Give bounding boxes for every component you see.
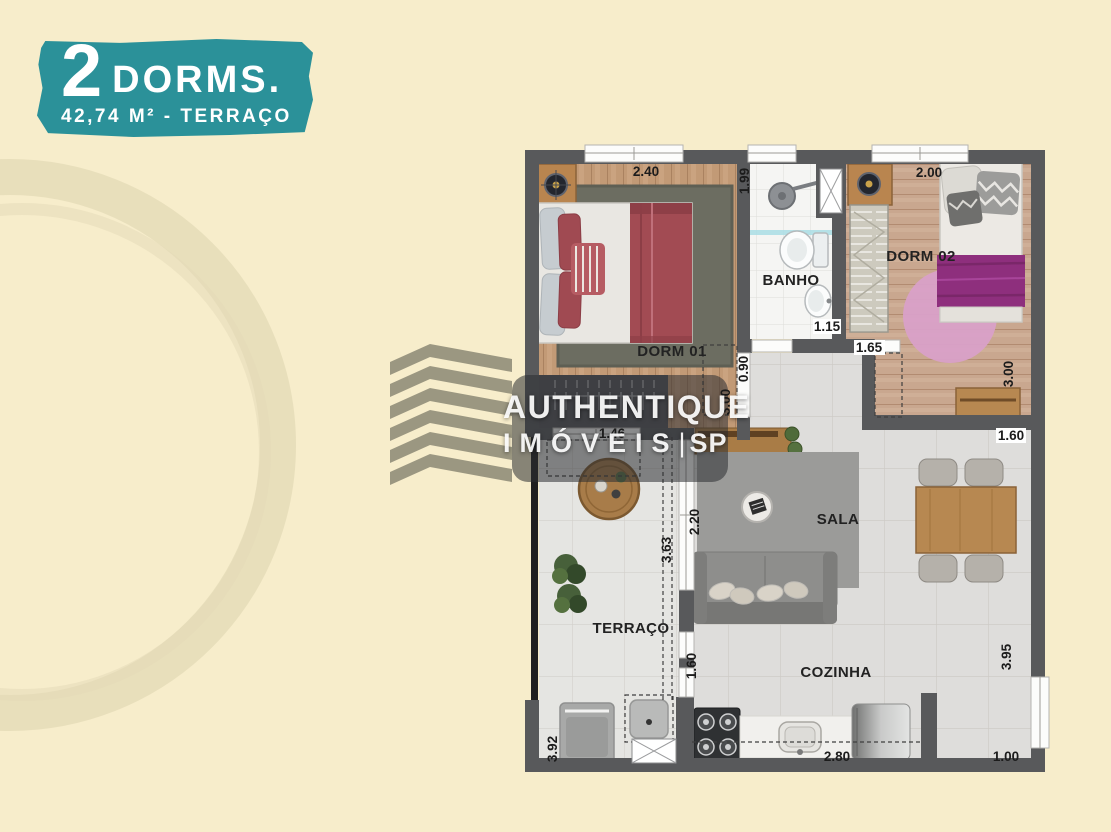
service-tank-sink: [625, 695, 673, 742]
unit-type-badge: 2 DORMS. 42,74 M² - TERRAÇO: [37, 39, 313, 137]
banho-toilet: [780, 231, 828, 269]
dining-set: [916, 459, 1016, 582]
dorm01-nightstand: [536, 164, 576, 206]
sala-sofa: [693, 552, 837, 624]
dim-dorm02-depth: 3.00: [1001, 361, 1016, 387]
watermark-brand-line2: IMÓVEIS: [503, 428, 679, 459]
room-label-sala: SALA: [817, 511, 859, 528]
badge-bedroom-count: 2: [61, 41, 102, 102]
dorm02-nightstand: [848, 164, 892, 205]
badge-area-label: 42,74 M² - TERRAÇO: [61, 106, 313, 128]
cozinha-fridge: [852, 704, 910, 760]
watermark: AUTHENTIQUE IMÓVEIS | SP: [503, 390, 751, 459]
page-background: DORM 01 BANHO DORM 02 SALA TERRAÇO COZIN…: [0, 0, 1111, 832]
badge-type-label: DORMS.: [112, 61, 282, 102]
banho-sink: [805, 285, 832, 317]
dim-hall-door: 0.90: [736, 356, 751, 382]
room-label-terraco: TERRAÇO: [593, 620, 670, 637]
dim-terraco-length: 3.63: [659, 536, 674, 563]
dim-banho-width: 1.15: [814, 319, 841, 334]
room-label-cozinha: COZINHA: [800, 664, 871, 681]
dim-sala-window: 2.20: [687, 509, 702, 535]
room-label-dorm01: DORM 01: [637, 343, 706, 360]
dim-banho-depth: 1.99: [737, 168, 752, 194]
dim-cozinha-width: 2.80: [824, 749, 850, 764]
dorm02-desk: [956, 388, 1020, 418]
watermark-separator: |: [679, 428, 686, 459]
room-label-banho: BANHO: [763, 272, 820, 289]
background-ring-decoration: [0, 177, 278, 713]
dim-dorm01-width: 2.40: [633, 164, 659, 179]
dim-terraco-depth: 3.92: [545, 736, 560, 762]
dorm02-single-bed: [937, 162, 1025, 322]
cozinha-stove: [694, 708, 740, 760]
room-label-dorm02: DORM 02: [886, 248, 955, 265]
service-washer: [560, 703, 614, 763]
watermark-brand: AUTHENTIQUE: [503, 390, 751, 425]
sala-coffee-table: [742, 492, 772, 522]
dim-dining-width: 1.60: [998, 428, 1024, 443]
dim-dorm02-width: 2.00: [916, 165, 942, 180]
dim-entry-width: 1.00: [993, 749, 1019, 764]
dim-cozinha-passage: 1.60: [684, 653, 699, 679]
dorm01-double-bed: [533, 201, 692, 345]
dim-cozinha-depth: 3.95: [999, 643, 1014, 670]
dorm02-wardrobe: [850, 205, 888, 332]
dim-dorm02-door: 1.65: [856, 340, 883, 355]
watermark-suffix: SP: [690, 428, 728, 459]
watermark-building-icon: [390, 344, 512, 485]
